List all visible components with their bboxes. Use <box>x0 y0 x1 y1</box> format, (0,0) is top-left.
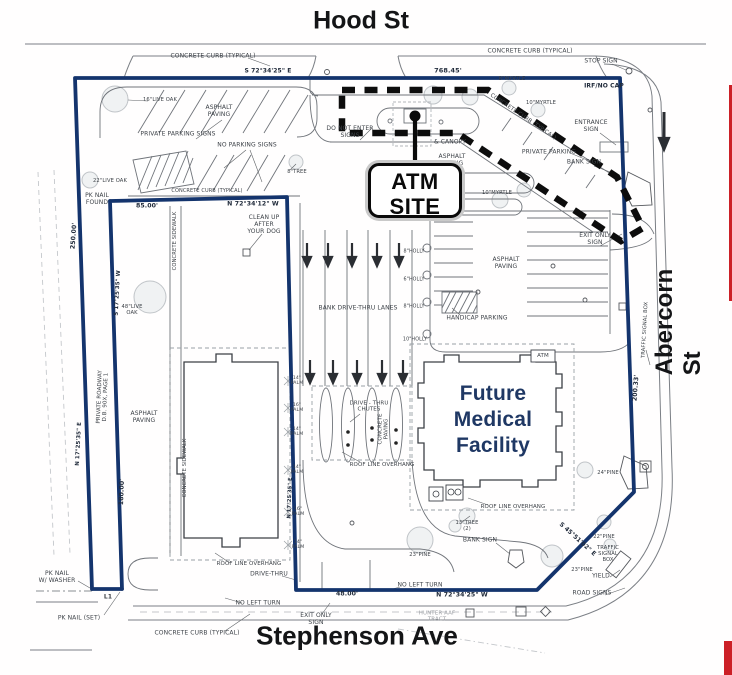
fmf-line-2: Medical <box>454 407 532 433</box>
stop-sign-symbol <box>626 68 632 74</box>
manhole-2 <box>466 609 474 617</box>
atm-callout-line-2: SITE <box>371 194 459 219</box>
fmf-line-3: Facility <box>454 433 532 459</box>
street-label-abercorn: Abercorn St <box>651 269 707 376</box>
atm-site-callout: ATM SITE <box>368 163 462 218</box>
leader-lines <box>78 58 650 631</box>
atm-callout-line-1: ATM <box>371 169 459 194</box>
site-plan: CONCRETE CURB (TYPICAL)S 72°34'25" E768.… <box>0 0 732 675</box>
street-label-hood: Hood St <box>313 7 409 36</box>
red-edge-mark-bottom <box>724 641 732 675</box>
diamond-marker <box>541 607 551 617</box>
traffic-box-symbol-1 <box>619 303 626 310</box>
atm-location-dot <box>410 111 421 122</box>
property-boundary <box>75 78 634 590</box>
yield-sign-symbol <box>606 551 631 578</box>
bank-sign-symbol <box>508 550 524 568</box>
future-medical-facility-label: Future Medical Facility <box>454 381 532 459</box>
fmf-line-1: Future <box>454 381 532 407</box>
atm-vestibule <box>531 350 555 362</box>
left-building <box>177 354 278 547</box>
manhole-1 <box>516 607 526 616</box>
street-label-stephenson: Stephenson Ave <box>256 621 458 652</box>
dog-sign <box>243 249 250 256</box>
tree-symbols <box>82 81 616 567</box>
site-plan-drawing <box>0 0 732 675</box>
atm-callout-leader <box>410 111 421 164</box>
red-edge-marks <box>724 85 732 675</box>
curbs-and-parking <box>100 78 654 590</box>
traffic-box-symbol-2 <box>640 461 651 472</box>
